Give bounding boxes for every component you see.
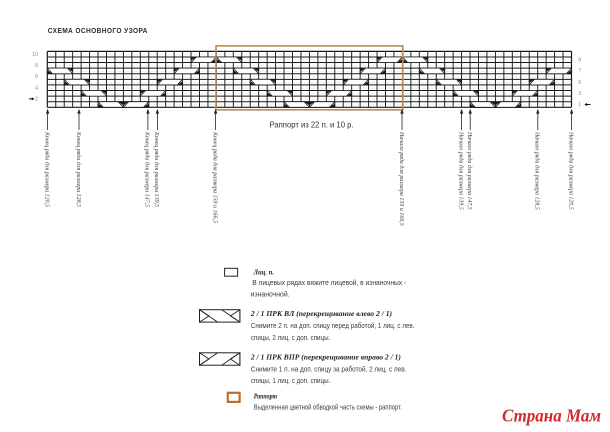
svg-text:2: 2 (35, 97, 38, 103)
svg-text:Раппорт из 22 п. и 10 р.: Раппорт из 22 п. и 10 р. (270, 120, 354, 130)
svg-text:2 / 1 ПРК ВПР (перекрещивание: 2 / 1 ПРК ВПР (перекрещивание вправо 2 /… (250, 352, 401, 361)
svg-text:Начало ряда для размера 147,5: Начало ряда для размера 147,5 (466, 131, 473, 210)
svg-text:спицы, 1 лиц. с доп. спицы.: спицы, 1 лиц. с доп. спицы. (251, 377, 330, 385)
svg-text:Конец ряда для размера 128,5: Конец ряда для размера 128,5 (75, 131, 82, 207)
svg-text:Лиц. п.: Лиц. п. (253, 268, 275, 276)
svg-text:1: 1 (578, 102, 581, 108)
svg-text:изнаночной.: изнаночной. (251, 291, 290, 299)
svg-text:Снимите 2 п. на доп. спицу пер: Снимите 2 п. на доп. спицу перед работой… (251, 322, 415, 330)
svg-text:В лицевых рядах вяжите лицевой: В лицевых рядах вяжите лицевой, в изнано… (252, 279, 407, 287)
svg-text:4: 4 (35, 85, 38, 91)
svg-text:Конец ряда для размера 147,5: Конец ряда для размера 147,5 (144, 131, 151, 207)
svg-text:6: 6 (35, 74, 38, 80)
svg-text:Раппорт: Раппорт (254, 392, 278, 400)
svg-text:Начало ряда для размера 159 и: Начало ряда для размера 159 и 166,5 (398, 131, 405, 226)
svg-text:2 / 1 ПРК ВЛ (перекрещивание в: 2 / 1 ПРК ВЛ (перекрещивание влево 2 / 1… (250, 309, 392, 318)
svg-text:Конец ряда для размера 120,5: Конец ряда для размера 120,5 (43, 131, 50, 207)
svg-text:Начало ряда для размера 120,5: Начало ряда для размера 120,5 (567, 131, 574, 210)
svg-text:8: 8 (35, 63, 38, 69)
svg-text:Конец ряда для размера 139,5: Конец ряда для размера 139,5 (153, 131, 160, 207)
svg-text:Начало ряда для размера 128,5: Начало ряда для размера 128,5 (534, 131, 541, 210)
svg-text:спицы, 2 лиц. с доп. спицы.: спицы, 2 лиц. с доп. спицы. (251, 334, 330, 342)
svg-text:Страна Мам: Страна Мам (502, 406, 601, 426)
svg-text:9: 9 (578, 57, 581, 63)
svg-text:СХЕМА ОСНОВНОГО УЗОРА: СХЕМА ОСНОВНОГО УЗОРА (48, 26, 148, 35)
svg-text:3: 3 (578, 91, 581, 97)
svg-text:Начало ряда для размера 139,5: Начало ряда для размера 139,5 (457, 131, 464, 210)
svg-text:Выделенная цветной обводкой ча: Выделенная цветной обводкой часть схемы … (254, 403, 402, 411)
svg-text:10: 10 (32, 52, 38, 58)
svg-text:Конец ряда для размера 159 и 1: Конец ряда для размера 159 и 166,5 (211, 131, 218, 223)
svg-text:5: 5 (578, 80, 581, 86)
svg-text:7: 7 (578, 69, 581, 75)
svg-text:Снимите 1 п. на доп. спицу за: Снимите 1 п. на доп. спицу за работой, 2… (251, 365, 407, 373)
